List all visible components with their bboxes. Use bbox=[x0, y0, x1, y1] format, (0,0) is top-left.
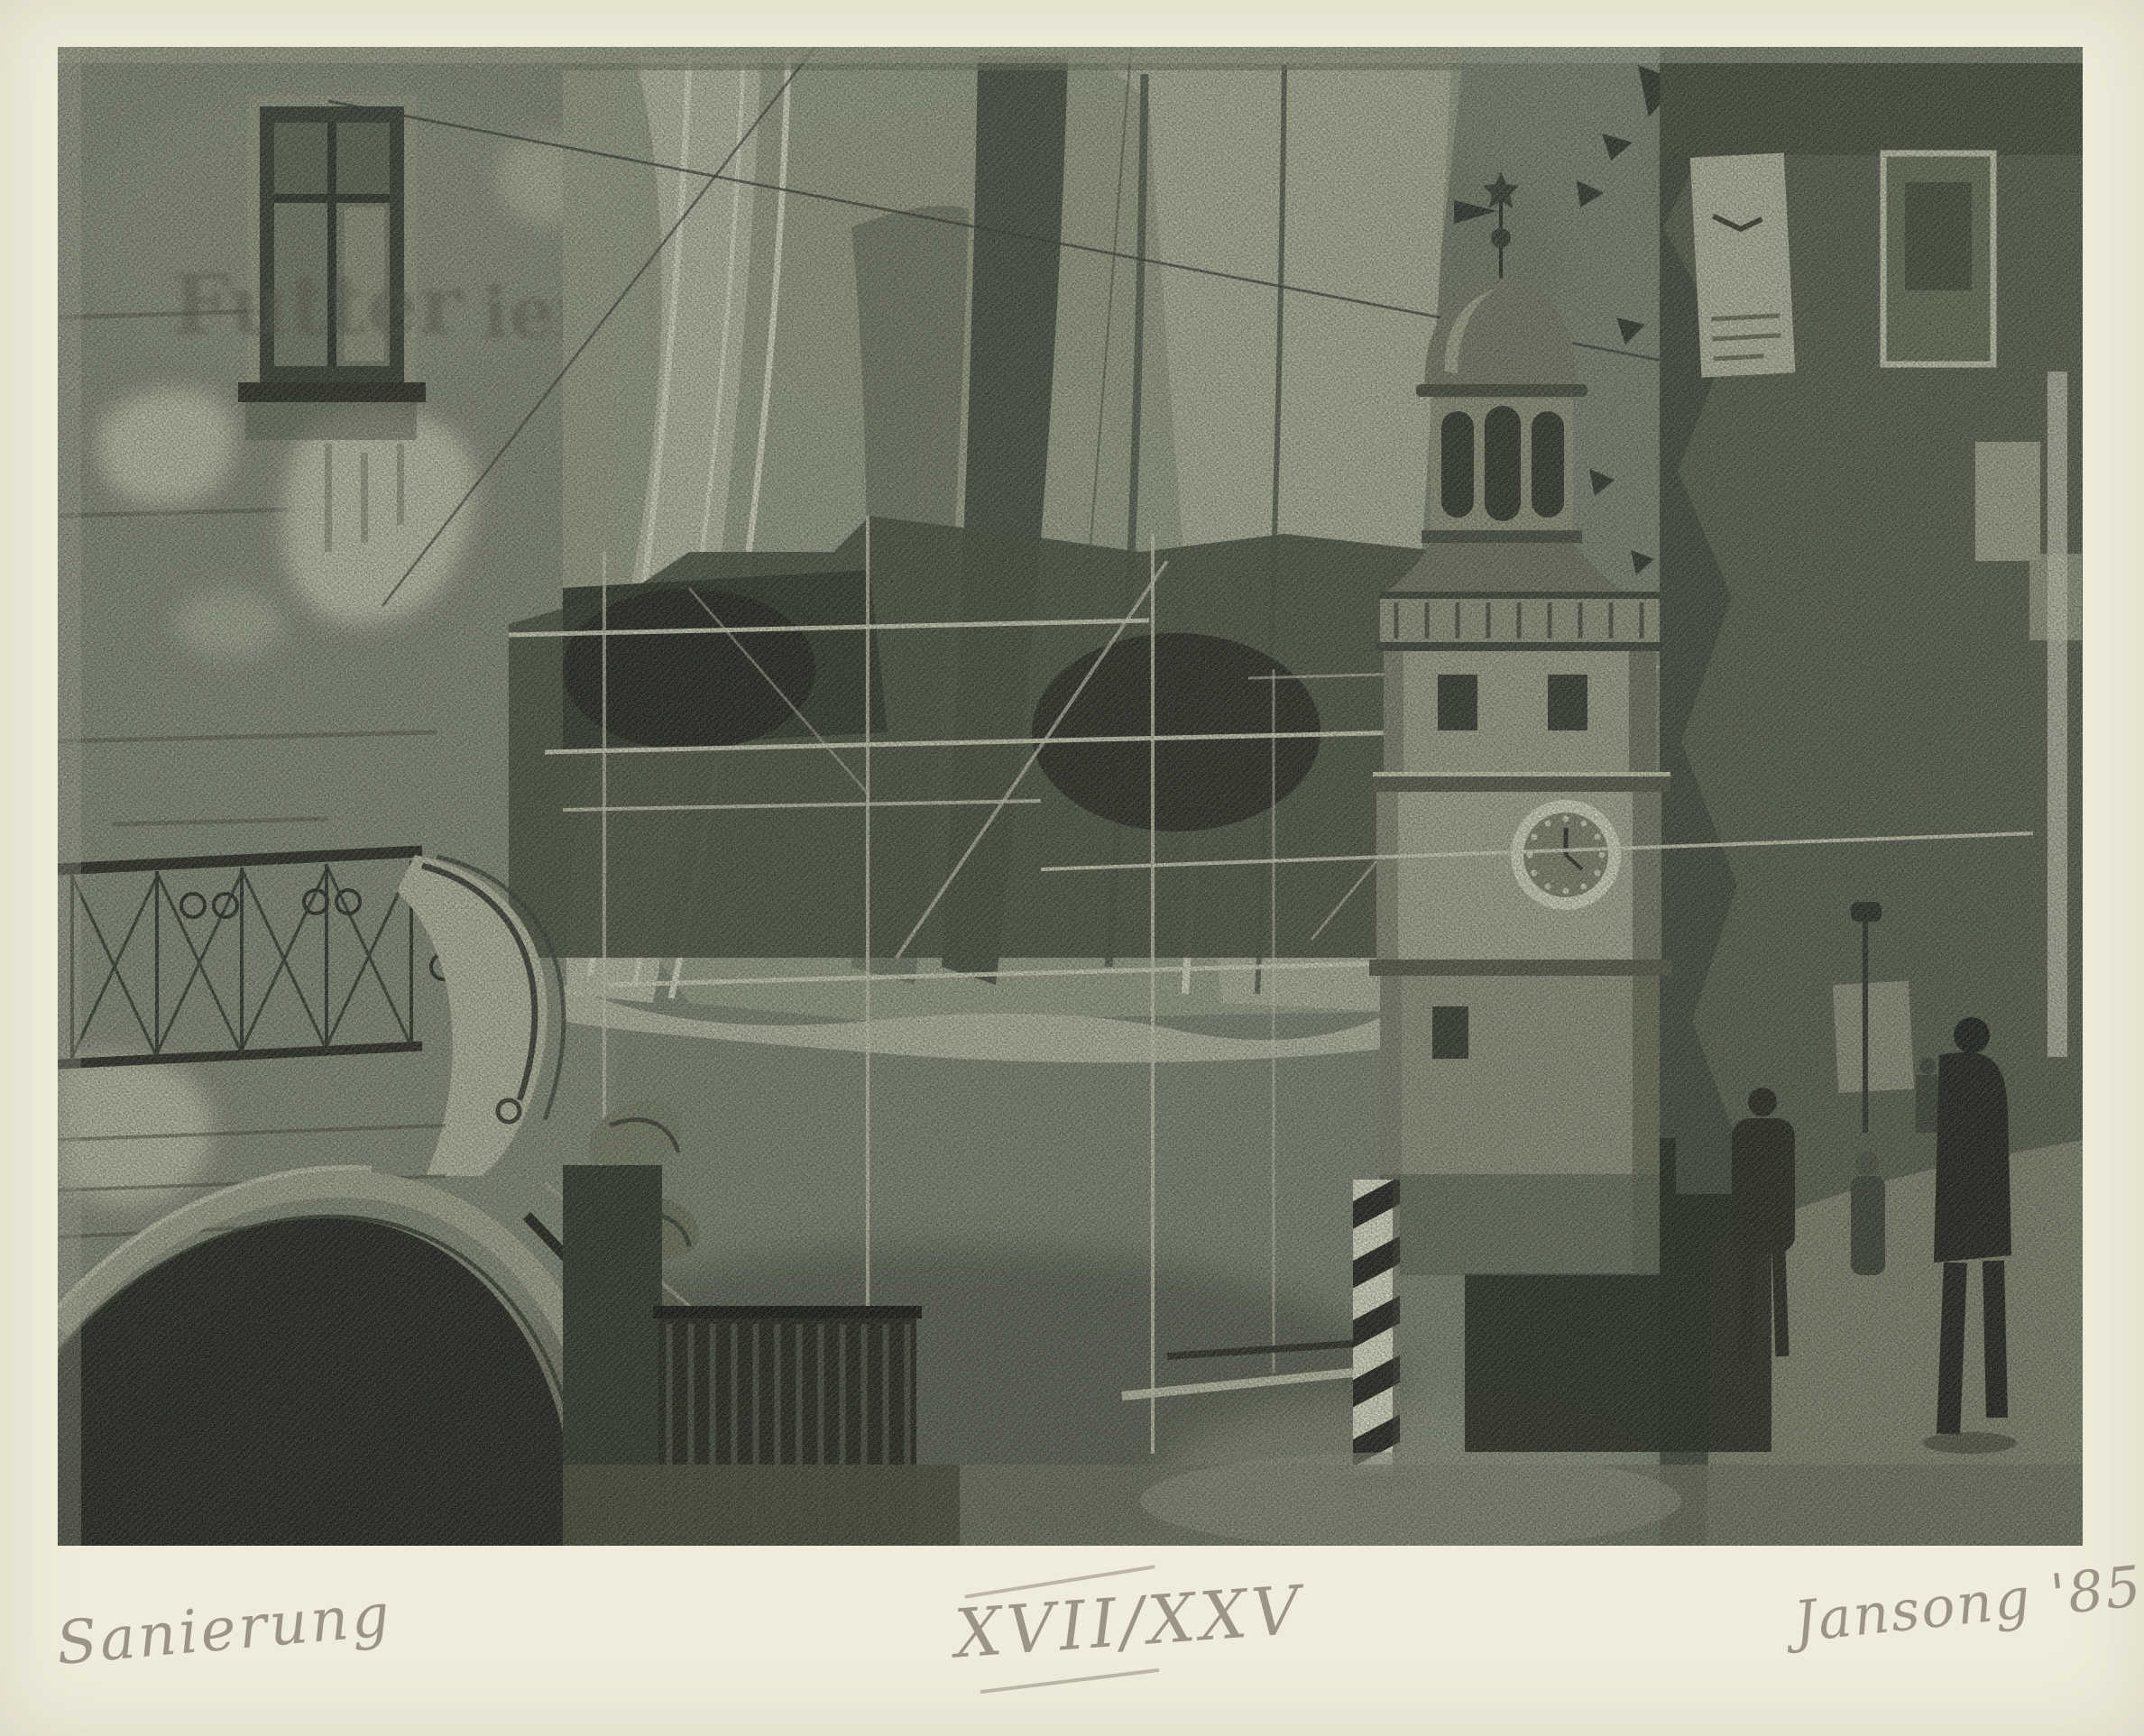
title-inscription: Sanierung bbox=[53, 1580, 394, 1678]
edition-inscription: XVII/XXV bbox=[952, 1572, 1306, 1674]
paper-sheet: Futter ier bbox=[0, 0, 2144, 1736]
grain-light-overlay bbox=[58, 47, 2083, 1546]
print-image: Futter ier bbox=[58, 47, 2083, 1546]
artist-signature: Jansong '85 bbox=[1790, 1553, 2144, 1655]
print-composition: Futter ier bbox=[58, 47, 2083, 1546]
edition-flourish-bottom bbox=[980, 1668, 1160, 1694]
